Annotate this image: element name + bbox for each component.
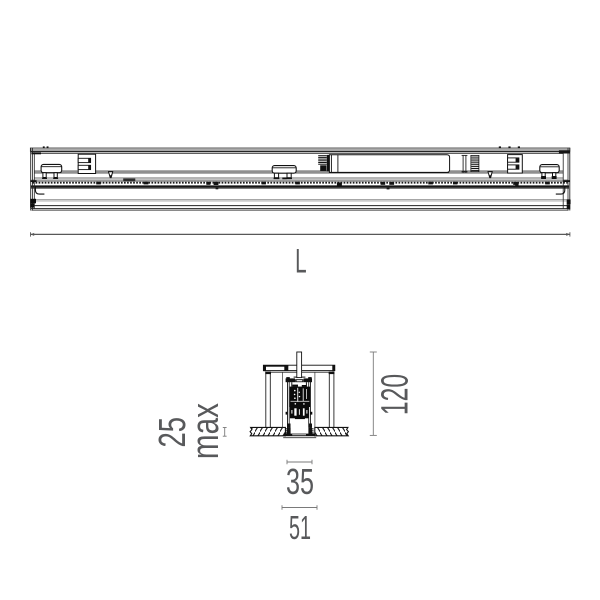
svg-text:51: 51 bbox=[289, 509, 311, 546]
svg-text:120: 120 bbox=[374, 374, 416, 415]
svg-text:L: L bbox=[295, 243, 307, 281]
svg-text:35: 35 bbox=[286, 462, 314, 502]
svg-text:max: max bbox=[185, 403, 227, 459]
